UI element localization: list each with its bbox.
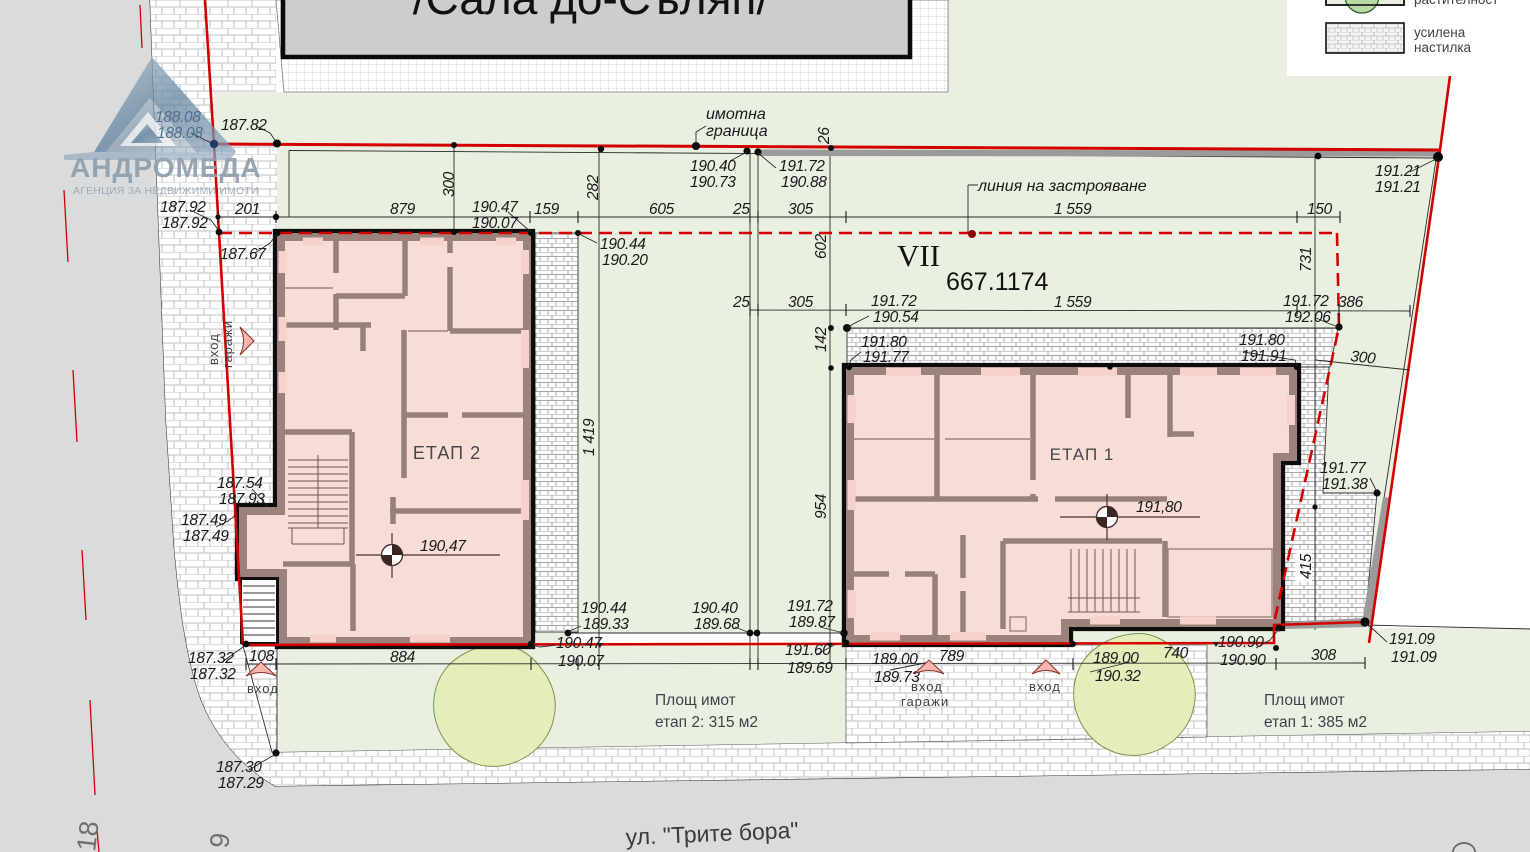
svg-text:201: 201 [234,201,260,218]
svg-text:667.1174: 667.1174 [946,268,1049,296]
svg-text:1 559: 1 559 [1054,294,1092,311]
svg-text:190.40: 190.40 [692,600,738,617]
svg-text:189.00: 189.00 [1093,650,1139,667]
svg-text:189.68: 189.68 [694,616,740,633]
svg-text:1 419: 1 419 [581,418,598,456]
svg-text:187.32: 187.32 [190,666,236,683]
svg-text:191.09: 191.09 [1391,649,1437,666]
svg-text:АНДРОМЕДА: АНДРОМЕДА [70,152,262,183]
svg-text:190.54: 190.54 [873,309,919,326]
svg-text:190,47: 190,47 [420,538,467,555]
svg-text:190.07: 190.07 [558,653,605,670]
svg-text:191.77: 191.77 [863,349,910,366]
svg-text:18: 18 [71,819,104,852]
svg-text:954: 954 [813,493,830,519]
svg-text:гаражи: гаражи [901,694,949,709]
svg-text:300: 300 [441,171,458,197]
svg-text:415: 415 [1298,553,1315,579]
svg-text:187.54: 187.54 [217,475,263,492]
svg-text:191.72: 191.72 [779,158,825,175]
svg-text:188.08: 188.08 [155,109,201,126]
svg-text:191.38: 191.38 [1322,476,1368,493]
svg-text:602: 602 [813,233,830,259]
svg-text:187.82: 187.82 [221,117,267,134]
svg-text:ЕТАП 1: ЕТАП 1 [1050,445,1115,464]
svg-text:191.21: 191.21 [1375,179,1421,196]
svg-text:605: 605 [649,201,675,218]
svg-text:имотна: имотна [706,106,766,123]
svg-text:190.88: 190.88 [781,174,827,191]
svg-text:191,80: 191,80 [1136,499,1182,516]
svg-text:усилена: усилена [1414,25,1466,40]
svg-text:настилка: настилка [1414,40,1472,55]
svg-text:191.72: 191.72 [871,293,917,310]
svg-text:884: 884 [390,649,416,666]
svg-text:187.32: 187.32 [188,650,234,667]
svg-text:VII: VII [897,238,940,273]
svg-text:ЕТАП 2: ЕТАП 2 [413,443,481,463]
svg-text:879: 879 [390,201,416,218]
svg-text:вход: вход [911,679,943,694]
svg-text:вход: вход [1029,679,1061,694]
svg-text:вход: вход [206,333,221,365]
svg-text:190.47: 190.47 [472,199,519,216]
svg-text:190.90: 190.90 [1218,634,1264,651]
svg-text:386: 386 [1338,294,1364,311]
svg-text:189.00: 189.00 [872,651,918,668]
svg-text:190.20: 190.20 [602,252,648,269]
svg-text:187.92: 187.92 [160,199,206,216]
svg-text:191.80: 191.80 [1239,332,1285,349]
svg-text:731: 731 [1298,247,1315,272]
svg-text:187.49: 187.49 [183,528,229,545]
svg-text:305: 305 [788,294,814,311]
svg-text:187.29: 187.29 [218,775,264,792]
svg-text:282: 282 [585,174,602,201]
svg-text:191.60: 191.60 [785,642,831,659]
svg-text:740: 740 [1163,645,1189,662]
svg-text:191.72: 191.72 [787,598,833,615]
svg-text:187.30: 187.30 [216,759,262,776]
svg-text:/Сала до-Съляп/: /Сала до-Съляп/ [413,0,770,24]
svg-text:189.87: 189.87 [789,614,836,631]
svg-text:25: 25 [732,294,750,311]
svg-text:159: 159 [534,201,560,218]
svg-text:187.93: 187.93 [219,491,265,508]
svg-text:300: 300 [1350,348,1377,368]
svg-text:190.32: 190.32 [1095,668,1141,685]
svg-text:308: 308 [1311,647,1337,664]
svg-text:25: 25 [732,201,750,218]
svg-text:АГЕНЦИЯ ЗА НЕДВИЖИМИ ИМОТИ: АГЕНЦИЯ ЗА НЕДВИЖИМИ ИМОТИ [73,185,259,197]
svg-text:190.73: 190.73 [690,174,736,191]
svg-text:150: 150 [1307,201,1333,218]
svg-text:187.49: 187.49 [181,512,227,529]
svg-text:190.40: 190.40 [690,158,736,175]
svg-text:Площ имот: Площ имот [1264,692,1345,709]
svg-text:192.06: 192.06 [1285,309,1331,326]
svg-text:305: 305 [788,201,814,218]
svg-text:26: 26 [816,127,833,145]
svg-text:190.47: 190.47 [556,635,603,652]
svg-text:191.91: 191.91 [1241,348,1287,365]
svg-text:190.44: 190.44 [600,236,646,253]
svg-text:187.67: 187.67 [220,246,267,263]
svg-text:етап 1: 385 м2: етап 1: 385 м2 [1264,714,1367,731]
svg-text:188.08: 188.08 [157,125,203,142]
svg-text:вход: вход [247,681,279,696]
svg-text:789: 789 [939,648,965,665]
svg-text:1 559: 1 559 [1054,201,1092,218]
svg-text:190.90: 190.90 [1220,652,1266,669]
svg-text:191.09: 191.09 [1389,631,1435,648]
svg-text:189.69: 189.69 [787,660,833,677]
svg-text:растителност: растителност [1414,0,1498,7]
svg-text:191.21: 191.21 [1375,163,1421,180]
svg-text:граница: граница [706,123,768,140]
svg-text:191.77: 191.77 [1320,460,1367,477]
svg-text:линия на застрояване: линия на застрояване [977,178,1147,195]
svg-text:187.92: 187.92 [162,215,208,232]
svg-text:191.72: 191.72 [1283,293,1329,310]
svg-text:142: 142 [813,326,830,352]
svg-text:Площ имот: Площ имот [655,692,736,709]
svg-text:190.44: 190.44 [581,600,627,617]
svg-text:гаражи: гаражи [220,320,235,368]
svg-text:етап 2: 315 м2: етап 2: 315 м2 [655,714,758,731]
svg-text:190.07: 190.07 [472,215,519,232]
svg-text:189.33: 189.33 [583,616,629,633]
